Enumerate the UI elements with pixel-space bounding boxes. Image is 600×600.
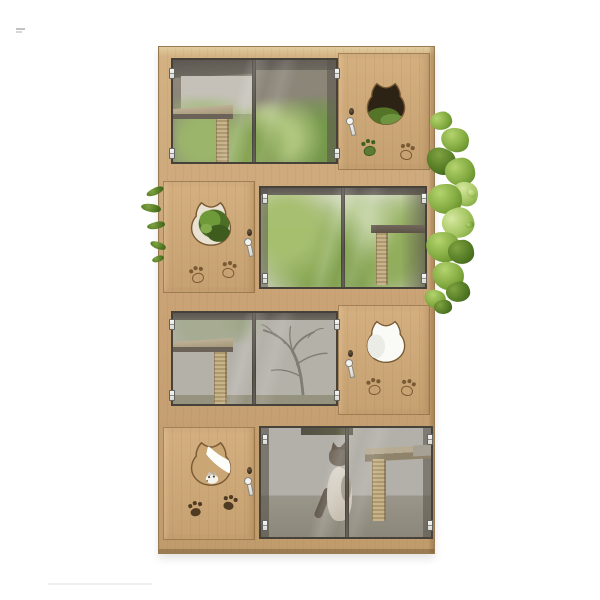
product-image bbox=[0, 0, 600, 600]
hinge bbox=[262, 434, 268, 445]
paw-print-icon bbox=[360, 138, 379, 157]
tier4-glass-enclosure bbox=[259, 426, 433, 539]
hinge bbox=[421, 273, 427, 284]
door-knob bbox=[348, 350, 353, 357]
cat-head-cutout-icon bbox=[363, 80, 409, 128]
hinge bbox=[427, 520, 433, 531]
key-icon bbox=[344, 358, 355, 376]
paw-print-icon bbox=[187, 500, 206, 519]
tier3-glass-enclosure bbox=[171, 311, 338, 406]
hinge bbox=[334, 68, 340, 79]
tier-1 bbox=[159, 47, 436, 177]
floor-shadow-line bbox=[48, 583, 152, 585]
cat-head-cutout-icon bbox=[363, 318, 409, 366]
cat-house-cabinet bbox=[158, 46, 435, 554]
paw-print-icon bbox=[365, 377, 383, 395]
hinge bbox=[421, 193, 427, 204]
hinge bbox=[169, 68, 175, 79]
hinge bbox=[169, 148, 175, 159]
cat-head-cutout-icon bbox=[187, 199, 235, 249]
hinge bbox=[169, 319, 175, 330]
hinge bbox=[334, 319, 340, 330]
tier2-wood-door bbox=[163, 181, 255, 293]
hinge bbox=[427, 434, 433, 445]
key-icon bbox=[243, 237, 254, 255]
hinge bbox=[262, 273, 268, 284]
door-knob bbox=[247, 229, 252, 236]
tier1-wood-door bbox=[338, 53, 430, 170]
door-knob bbox=[349, 108, 354, 115]
paw-print-icon bbox=[398, 377, 417, 396]
tier4-wood-door bbox=[163, 427, 255, 540]
hinge bbox=[262, 520, 268, 531]
hinge bbox=[262, 193, 268, 204]
cat-head-cutout-icon bbox=[187, 439, 235, 489]
hinge bbox=[334, 390, 340, 401]
paw-print-icon bbox=[187, 264, 206, 283]
tier-3 bbox=[159, 305, 436, 425]
key-icon bbox=[243, 476, 254, 494]
tier2-glass-enclosure bbox=[259, 186, 427, 289]
watermark-mark bbox=[16, 28, 26, 35]
key-icon bbox=[345, 116, 357, 134]
paw-print-icon bbox=[398, 142, 417, 161]
paw-print-icon bbox=[221, 494, 240, 513]
paw-print-icon bbox=[220, 260, 239, 279]
tier3-wood-door bbox=[338, 305, 430, 415]
door-knob bbox=[247, 467, 252, 474]
tier1-glass-enclosure bbox=[171, 58, 338, 164]
tier-4 bbox=[159, 425, 436, 555]
hinge bbox=[334, 148, 340, 159]
hinge bbox=[169, 390, 175, 401]
tier-2 bbox=[159, 177, 436, 305]
